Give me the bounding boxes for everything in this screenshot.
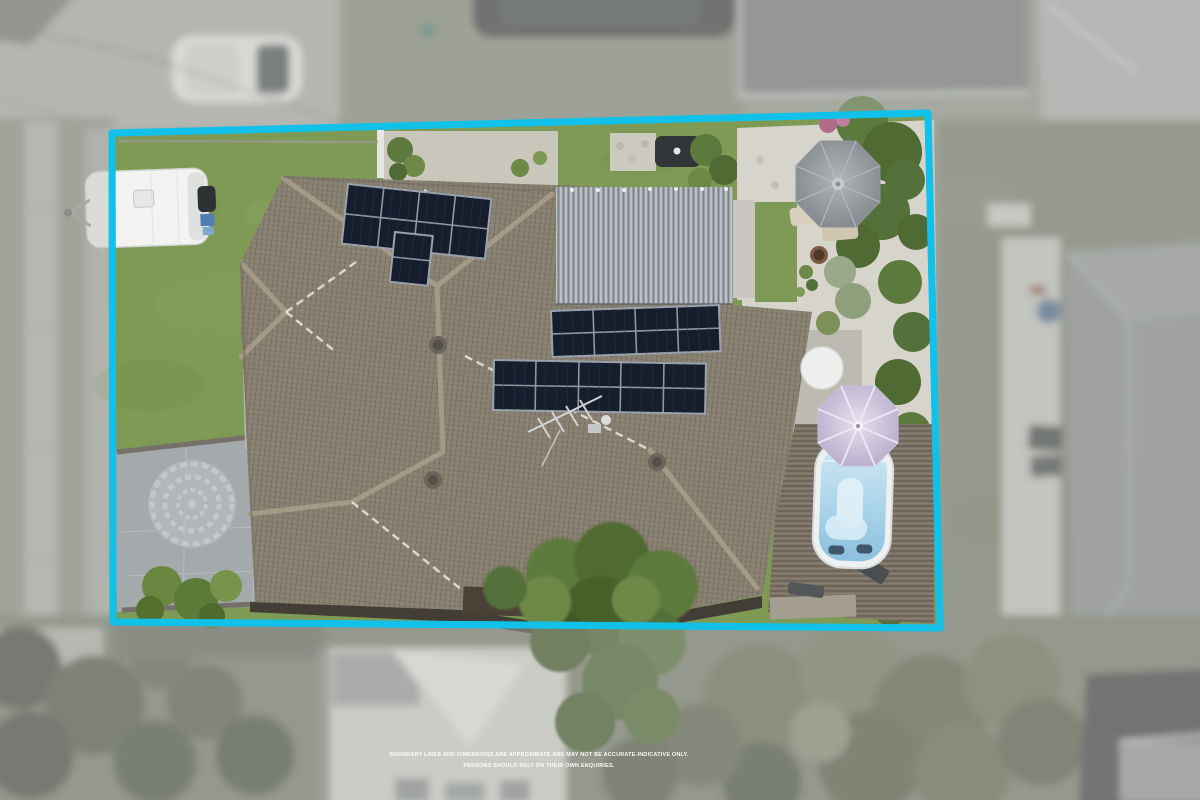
- solar-array-front-lower: [390, 232, 433, 286]
- solar-array-rear-lower: [493, 360, 706, 414]
- aerial-photo: BOUNDARY LINES AND DIMENSIONS ARE APPROX…: [0, 0, 1200, 800]
- disclaimer-line2: PERSONS SHOULD RELY ON THEIR OWN ENQUIRI…: [463, 763, 614, 769]
- caravan-wheel: [197, 186, 216, 213]
- white-fence: [377, 130, 384, 178]
- lilac-umbrella: [818, 386, 898, 466]
- fence-rail: [118, 141, 378, 142]
- driveway-circle-motif: [148, 460, 236, 548]
- white-table: [801, 347, 843, 389]
- blue-crate: [200, 214, 214, 226]
- concrete-pad: [733, 200, 755, 298]
- aerial-photo-canvas: BOUNDARY LINES AND DIMENSIONS ARE APPROX…: [0, 0, 1200, 800]
- lower-deck: [770, 595, 857, 620]
- disclaimer-line1: BOUNDARY LINES AND DIMENSIONS ARE APPROX…: [389, 752, 688, 758]
- solar-array-rear-upper: [551, 305, 721, 357]
- grey-umbrella: [796, 141, 880, 227]
- stone-garden-bed: [610, 133, 656, 171]
